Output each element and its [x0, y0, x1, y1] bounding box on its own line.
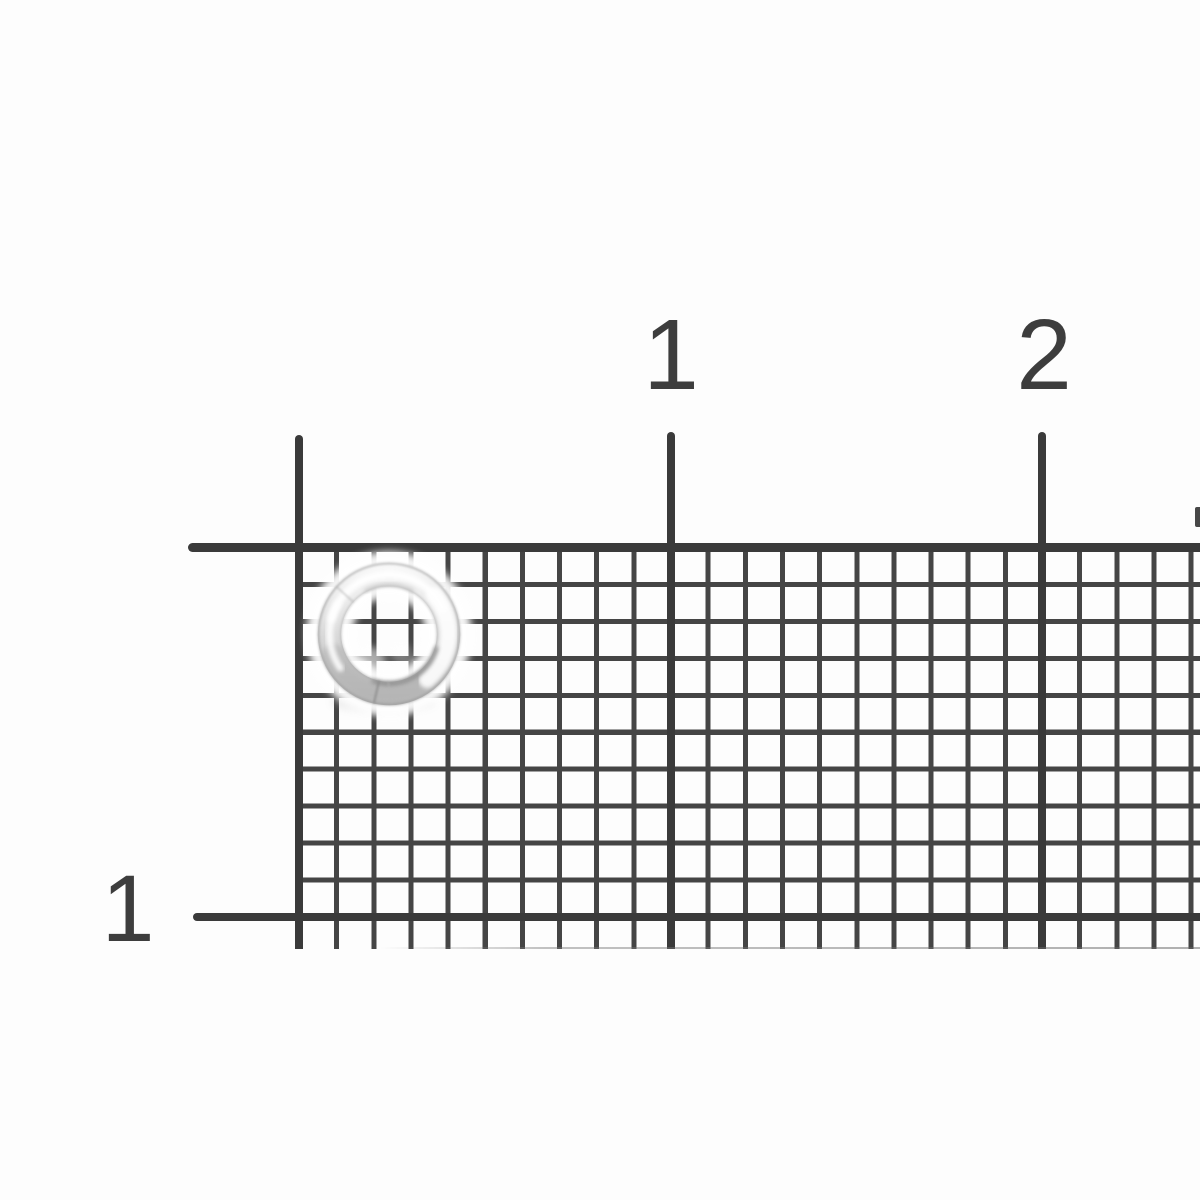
product-photo: 1 2 1 [0, 0, 1200, 1200]
right-edge-mark [1195, 507, 1200, 527]
split-ring [289, 534, 489, 734]
ruler-label-top-2: 2 [1016, 305, 1072, 405]
grid-major-row-line [193, 913, 1200, 921]
ruler-label-top-1: 1 [643, 305, 699, 405]
grid-cut-edge-line [380, 947, 1200, 949]
ring-inner-haze-2 [390, 643, 412, 665]
ruler-tick-two [1038, 432, 1046, 949]
ruler-tick-one [667, 432, 675, 949]
ruler-label-left-1: 1 [102, 862, 155, 957]
ring-inner-edge [341, 586, 437, 682]
